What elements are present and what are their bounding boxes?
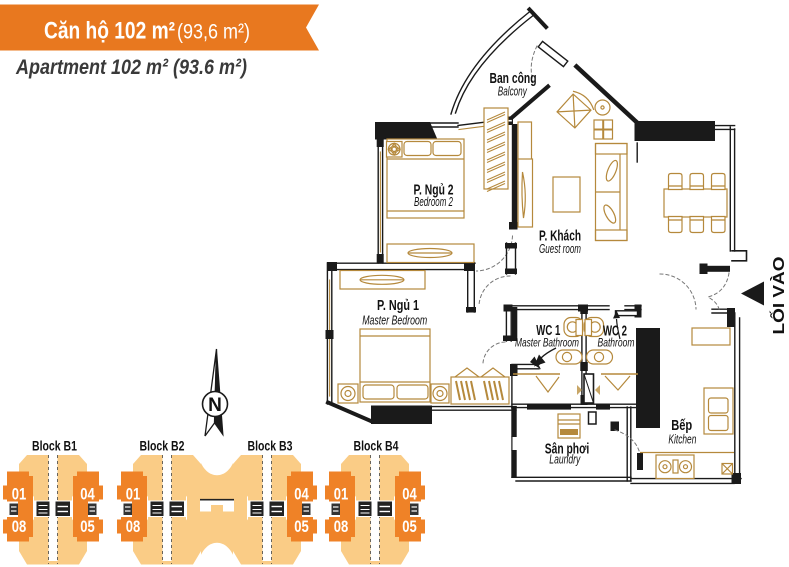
svg-text:Bathroom: Bathroom — [598, 336, 635, 350]
svg-text:N: N — [208, 395, 222, 416]
svg-text:LỐI VÀO: LỐI VÀO — [768, 257, 788, 335]
svg-text:05: 05 — [402, 518, 417, 536]
svg-text:08: 08 — [334, 518, 349, 536]
svg-text:04: 04 — [402, 486, 417, 504]
svg-text:Kitchen: Kitchen — [668, 433, 696, 447]
svg-text:Block B2: Block B2 — [140, 439, 185, 454]
svg-text:05: 05 — [294, 518, 309, 536]
svg-text:08: 08 — [12, 518, 27, 536]
svg-text:Laundry: Laundry — [549, 453, 581, 467]
svg-text:Guest room: Guest room — [539, 242, 581, 256]
svg-text:Block B1: Block B1 — [32, 439, 77, 454]
svg-text:P. Ngủ 1: P. Ngủ 1 — [377, 297, 419, 314]
svg-text:04: 04 — [294, 486, 309, 504]
svg-text:01: 01 — [126, 486, 141, 504]
svg-text:Bếp: Bếp — [671, 417, 692, 434]
svg-text:Master Bathroom: Master Bathroom — [515, 336, 579, 350]
svg-text:01: 01 — [334, 486, 349, 504]
svg-text:Block B4: Block B4 — [354, 439, 399, 454]
svg-text:Balcony: Balcony — [498, 85, 527, 99]
svg-text:(93,6 m²): (93,6 m²) — [177, 21, 250, 44]
svg-text:01: 01 — [12, 486, 27, 504]
svg-text:Apartment 102 m² (93.6 m²): Apartment 102 m² (93.6 m²) — [15, 55, 247, 79]
svg-text:08: 08 — [126, 518, 141, 536]
svg-text:04: 04 — [80, 486, 95, 504]
svg-text:Bedroom 2: Bedroom 2 — [414, 195, 453, 209]
svg-text:05: 05 — [80, 518, 95, 536]
svg-text:Block B3: Block B3 — [248, 439, 293, 454]
svg-text:Master Bedroom: Master Bedroom — [362, 314, 427, 328]
svg-text:Căn hộ 102 m²: Căn hộ 102 m² — [44, 18, 175, 45]
